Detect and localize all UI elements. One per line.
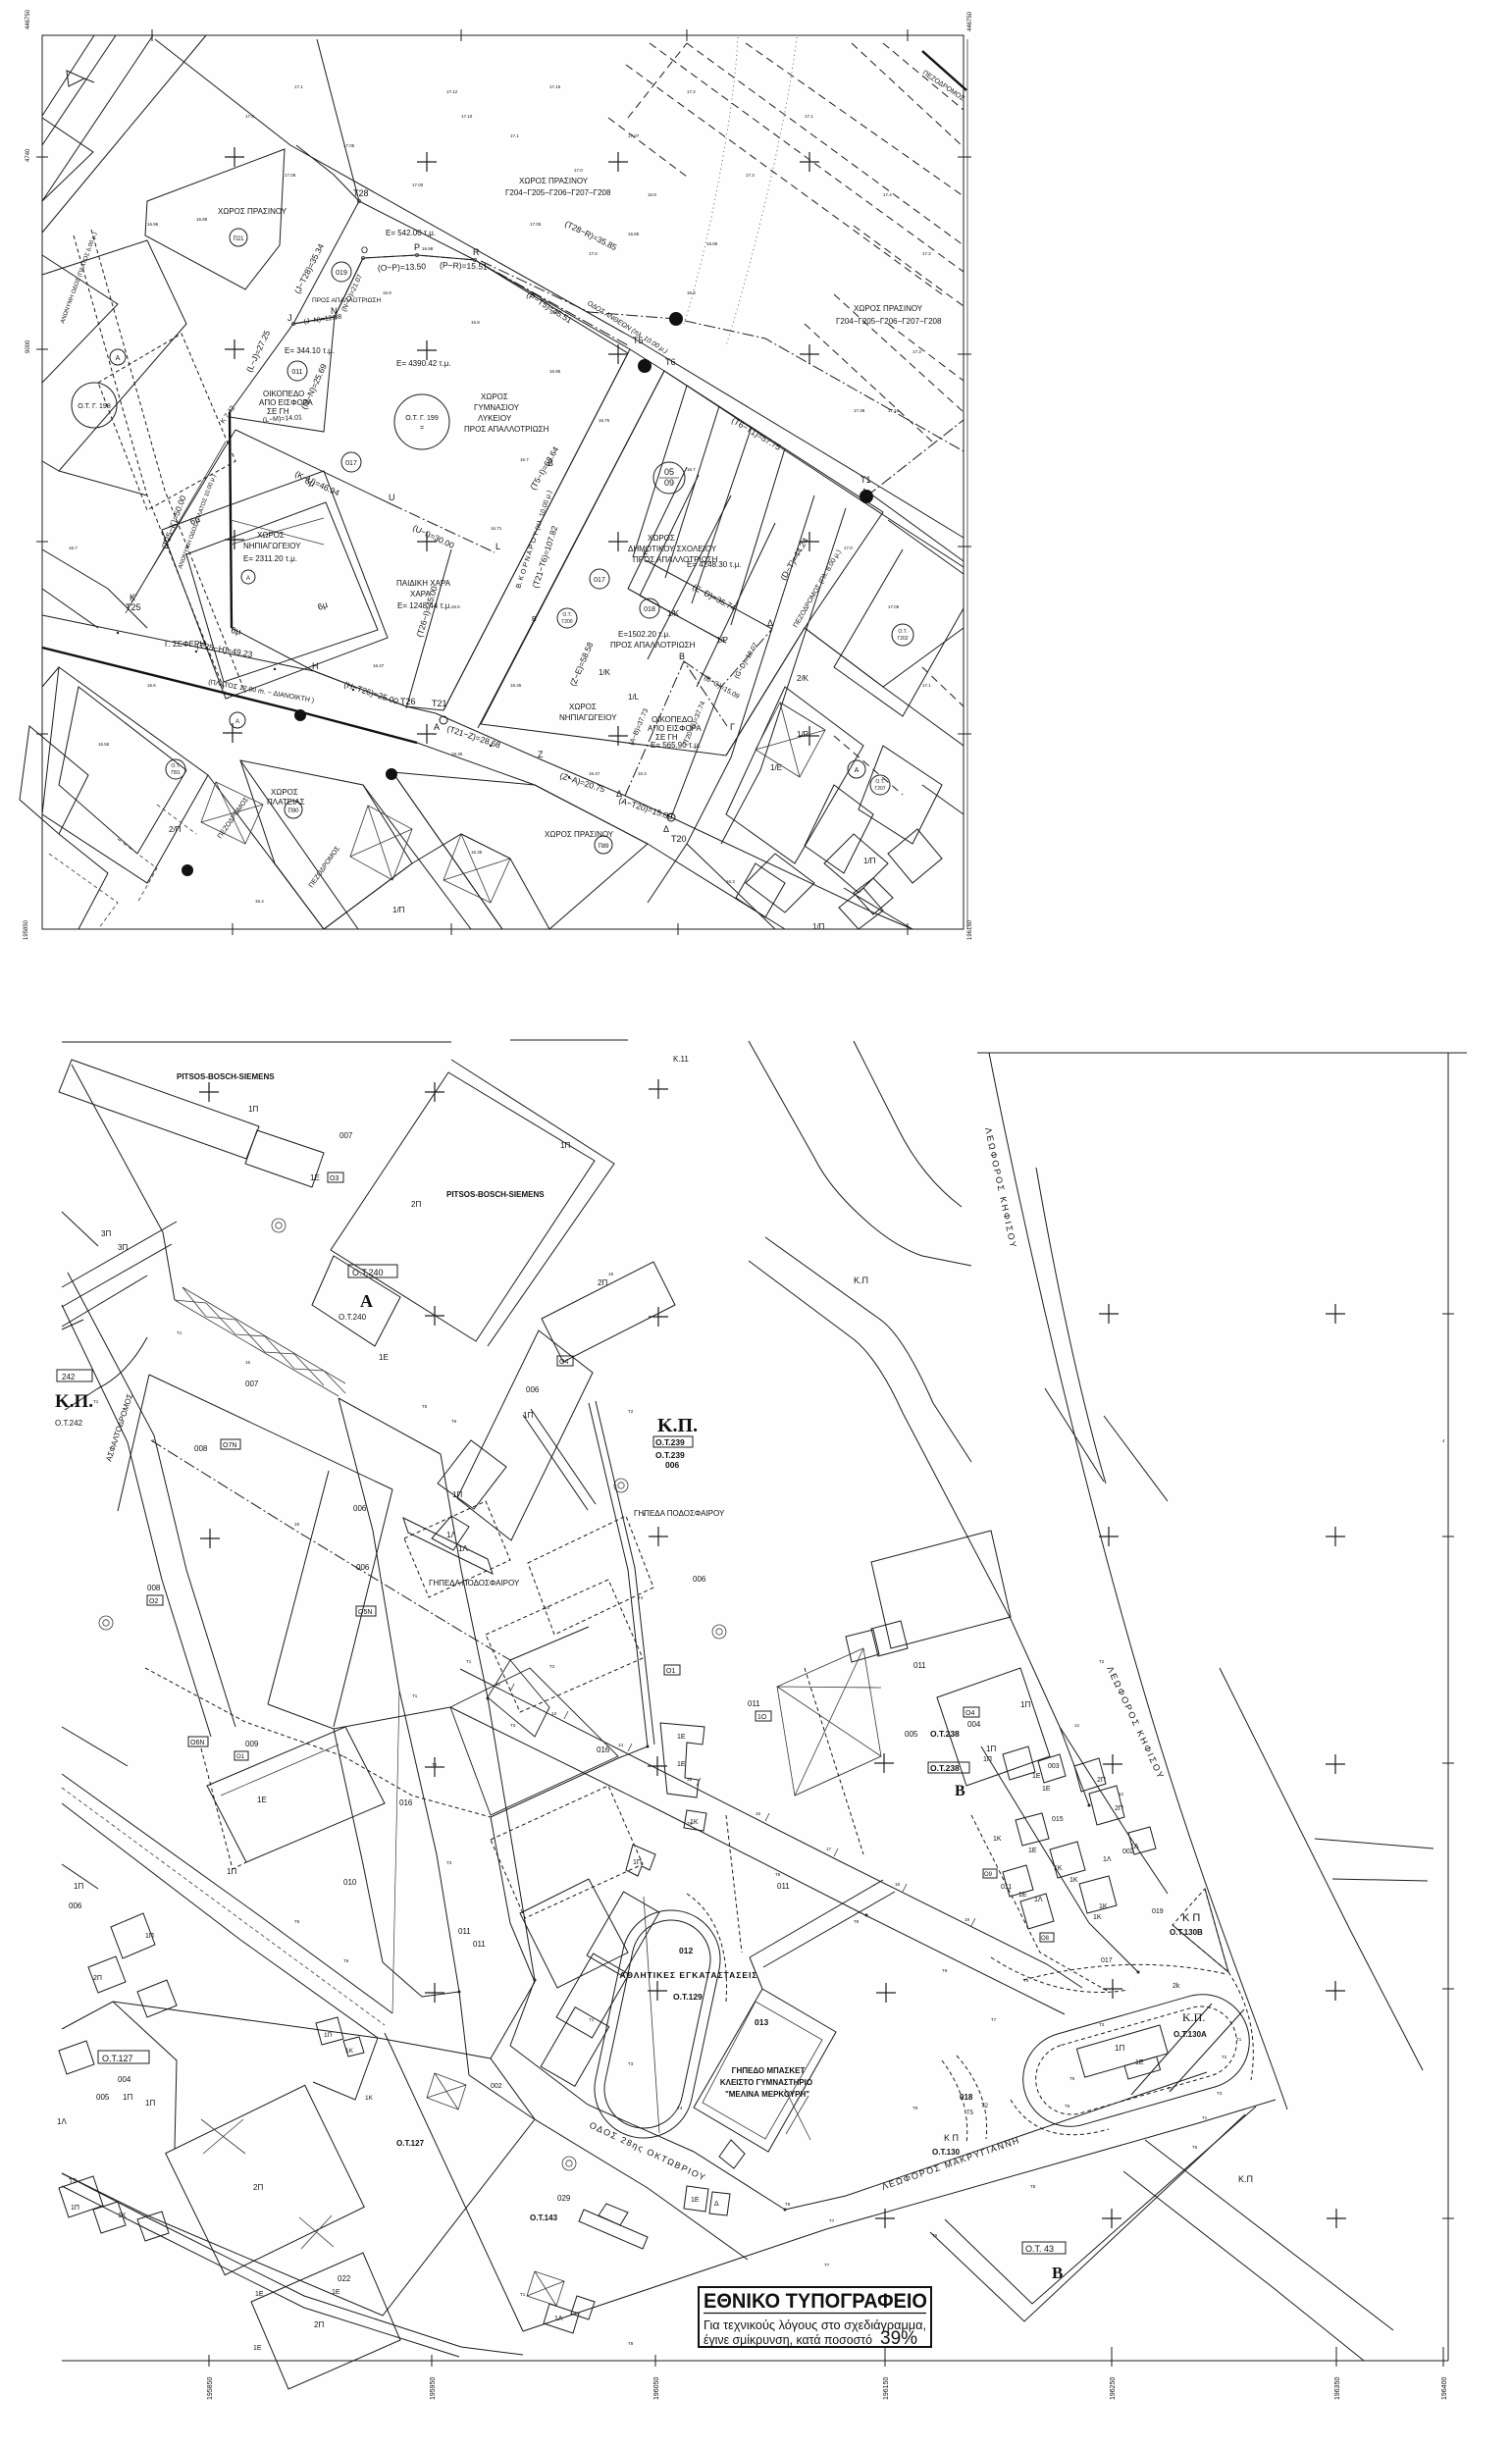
svg-text:1Π: 1Π [227, 1867, 236, 1876]
svg-text:1/Κ: 1/Κ [599, 668, 611, 677]
svg-text:Ο.Τ.238: Ο.Τ.238 [930, 1729, 960, 1739]
svg-text:ΝΗΠΙΑΓΩΓΕΙΟΥ: ΝΗΠΙΑΓΩΓΕΙΟΥ [559, 713, 617, 722]
svg-text:2Π: 2Π [1115, 1805, 1123, 1812]
svg-text:17.1: 17.1 [922, 683, 931, 688]
svg-text:17.3: 17.3 [912, 349, 921, 354]
svg-text:Τ8: Τ8 [912, 2106, 918, 2110]
svg-text:Ε= 4248.30 τ.μ.: Ε= 4248.30 τ.μ. [687, 560, 742, 569]
svg-text:ΠΑΙΔΙΚΗ ΧΑΡΑ: ΠΑΙΔΙΚΗ ΧΑΡΑ [396, 579, 451, 588]
svg-text:Ε: Ε [643, 549, 649, 559]
svg-text:018: 018 [644, 606, 655, 613]
svg-text:Τ20: Τ20 [671, 834, 687, 844]
svg-text:Ο3: Ο3 [330, 1175, 339, 1182]
svg-text:16.71: 16.71 [491, 526, 502, 531]
svg-text:Η: Η [312, 661, 319, 671]
svg-text:16.75: 16.75 [599, 418, 610, 423]
svg-text:Ο.Τ.242: Ο.Τ.242 [55, 1419, 83, 1428]
svg-text:1/Ρ: 1/Ρ [716, 636, 728, 645]
svg-text:Κ.Π.: Κ.Π. [55, 1391, 93, 1412]
svg-text:12: 12 [1119, 1792, 1124, 1797]
svg-text:12: 12 [495, 1682, 501, 1687]
svg-text:1Ο: 1Ο [757, 1714, 767, 1721]
svg-text:Β: Β [1052, 2264, 1063, 2282]
svg-text:17.2: 17.2 [687, 89, 696, 94]
svg-text:19: 19 [608, 1272, 614, 1276]
svg-text:16.7: 16.7 [687, 467, 696, 472]
svg-text:16.35: 16.35 [451, 752, 463, 756]
svg-text:1Π: 1Π [123, 2093, 132, 2102]
svg-text:ΑΘΛΗΤΙΚΕΣ ΕΓΚΑΤΑΣΤΑΣΕΙΣ: ΑΘΛΗΤΙΚΕΣ ΕΓΚΑΤΑΣΤΑΣΕΙΣ [619, 1970, 757, 1980]
svg-text:17.12: 17.12 [446, 89, 458, 94]
svg-text:Τ8: Τ8 [854, 1919, 860, 1924]
svg-text:Τ5: Τ5 [69, 2178, 77, 2185]
svg-text:ΧΩΡΟΣ: ΧΩΡΟΣ [648, 534, 675, 543]
svg-text:18: 18 [895, 1882, 901, 1887]
svg-text:ΟΙΚΟΠΕΔΟ: ΟΙΚΟΠΕΔΟ [652, 715, 693, 724]
svg-text:16.85: 16.85 [628, 232, 640, 236]
svg-text:008: 008 [147, 1584, 161, 1592]
svg-text:Ο5Ν: Ο5Ν [358, 1609, 372, 1616]
svg-text:1Ε: 1Ε [379, 1353, 389, 1362]
svg-text:R: R [473, 247, 480, 257]
svg-text:Ε= 2311.20 τ.μ.: Ε= 2311.20 τ.μ. [243, 554, 297, 563]
svg-text:16.85: 16.85 [706, 241, 718, 246]
svg-text:Τ1: Τ1 [466, 1659, 472, 1664]
svg-text:019: 019 [336, 270, 347, 277]
svg-text:16.5: 16.5 [451, 604, 460, 609]
svg-text:ΧΩΡΟΣ: ΧΩΡΟΣ [569, 703, 597, 711]
svg-text:017: 017 [345, 460, 357, 467]
svg-text:Κ.Π: Κ.Π [1238, 2174, 1253, 2184]
svg-text:Π90: Π90 [287, 808, 299, 814]
svg-text:17.0: 17.0 [844, 546, 853, 550]
svg-text:1Π: 1Π [452, 1490, 462, 1499]
svg-text:017: 017 [594, 577, 605, 584]
svg-text:16.4: 16.4 [255, 899, 264, 904]
svg-text:195950: 195950 [430, 2377, 437, 2400]
svg-text:16.55: 16.55 [98, 742, 110, 747]
svg-text:Τ1: Τ1 [520, 2292, 526, 2297]
svg-text:Τ25: Τ25 [126, 602, 141, 612]
svg-text:Τ21: Τ21 [432, 699, 447, 708]
svg-text:Ο.Τ.239: Ο.Τ.239 [655, 1437, 685, 1447]
svg-text:Τ26: Τ26 [400, 697, 416, 706]
svg-text:17.15: 17.15 [888, 408, 900, 413]
svg-text:Ο.Τ. Γ. 199: Ο.Τ. Γ. 199 [405, 415, 439, 422]
svg-text:15: 15 [245, 1360, 251, 1365]
svg-text:2Π: 2Π [93, 1975, 102, 1982]
svg-text:1Λ: 1Λ [554, 2316, 563, 2322]
svg-text:Τ4: Τ4 [638, 1595, 644, 1600]
svg-text:ΚΛΕΙΣΤΟ ΓΥΜΝΑΣΤΗΡΙΟ: ΚΛΕΙΣΤΟ ΓΥΜΝΑΣΤΗΡΙΟ [720, 2078, 812, 2087]
svg-text:2/Κ: 2/Κ [797, 674, 809, 683]
svg-text:Ο.Τ.: Ο.Τ. [875, 779, 884, 785]
svg-text:Ο.Τ.238: Ο.Τ.238 [930, 1763, 960, 1773]
svg-text:Τ2: Τ2 [1222, 2055, 1227, 2059]
svg-text:Δ: Δ [767, 618, 773, 628]
svg-text:17: 17 [826, 1847, 832, 1851]
svg-text:Τ2: Τ2 [432, 1762, 438, 1767]
svg-text:1/L: 1/L [628, 693, 640, 702]
svg-text:Ο.Τ. Γ. 198: Ο.Τ. Γ. 198 [78, 403, 111, 410]
svg-text:196350: 196350 [1334, 2377, 1341, 2400]
svg-text:17.05: 17.05 [530, 222, 542, 227]
svg-text:Κ.11: Κ.11 [673, 1055, 689, 1064]
svg-text:15: 15 [687, 1777, 693, 1782]
svg-text:Ο1: Ο1 [666, 1668, 675, 1675]
svg-text:010: 010 [343, 1878, 357, 1887]
svg-text:007: 007 [339, 1131, 353, 1140]
svg-text:6μ: 6μ [231, 625, 242, 637]
svg-text:Κ Π: Κ Π [944, 2133, 959, 2143]
svg-text:Τ5: Τ5 [422, 1404, 428, 1409]
svg-text:16.8: 16.8 [549, 310, 558, 315]
svg-text:1Π: 1Π [633, 1859, 642, 1866]
svg-text:1Κ: 1Κ [1093, 1914, 1102, 1921]
svg-text:16.9: 16.9 [648, 192, 656, 197]
svg-text:Ο.Τ.130: Ο.Τ.130 [932, 2148, 961, 2157]
svg-text:Α: Α [855, 767, 860, 774]
svg-text:1Λ: 1Λ [57, 2117, 67, 2126]
svg-text:Ο.Τ.: Ο.Τ. [171, 763, 180, 769]
svg-text:011: 011 [748, 1699, 760, 1708]
svg-text:242: 242 [62, 1373, 76, 1381]
svg-text:012: 012 [679, 1946, 693, 1955]
svg-text:1Π: 1Π [986, 1745, 996, 1753]
svg-text:16.6: 16.6 [147, 683, 156, 688]
svg-text:19: 19 [294, 1522, 300, 1527]
svg-text:015: 015 [1052, 1816, 1064, 1823]
svg-text:1Π: 1Π [523, 1411, 533, 1420]
svg-text:446750: 446750 [967, 11, 973, 31]
svg-text:Τ3: Τ3 [1217, 2091, 1223, 2096]
svg-text:ΠΡΟΣ ΑΠΑΛΛΟΤΡΙΩΣΗ: ΠΡΟΣ ΑΠΑΛΛΟΤΡΙΩΣΗ [610, 641, 696, 650]
svg-text:L: L [495, 542, 500, 551]
svg-text:1Π: 1Π [1020, 1700, 1030, 1709]
svg-text:2k: 2k [1173, 1983, 1180, 1990]
svg-text:1Π: 1Π [560, 1141, 570, 1150]
svg-text:Τ6: Τ6 [451, 1419, 457, 1424]
svg-text:1Ε: 1Ε [691, 2197, 700, 2204]
svg-text:Τ1: Τ1 [860, 475, 871, 485]
svg-text:019: 019 [1152, 1908, 1164, 1915]
svg-text:Τ5: Τ5 [1065, 2104, 1070, 2109]
svg-text:1Ε: 1Ε [677, 1761, 686, 1768]
svg-text:ΛΥΚΕΙΟΥ: ΛΥΚΕΙΟΥ [478, 414, 512, 423]
svg-text:1Ε: 1Ε [253, 2345, 262, 2352]
svg-text:Ε= 344.10 τ.μ.: Ε= 344.10 τ.μ. [285, 346, 335, 355]
svg-text:2/Π: 2/Π [169, 825, 182, 834]
svg-text:Τ2: Τ2 [1168, 2086, 1173, 2091]
svg-text:006: 006 [69, 1901, 82, 1910]
svg-text:Π89: Π89 [598, 844, 609, 850]
svg-text:16.4: 16.4 [638, 771, 647, 776]
svg-text:Ο1: Ο1 [236, 1754, 245, 1760]
svg-text:1Π: 1Π [145, 1933, 154, 1940]
svg-text:1Ε: 1Ε [332, 2289, 340, 2296]
svg-text:Ο.Τ. 43: Ο.Τ. 43 [1025, 2244, 1054, 2254]
svg-text:2Π: 2Π [314, 2320, 324, 2329]
svg-text:Τ4: Τ4 [1023, 1978, 1029, 1983]
svg-text:ΓΗΠΕΔΑ ΠΟΔΟΣΦΑΙΡΟΥ: ΓΗΠΕΔΑ ΠΟΔΟΣΦΑΙΡΟΥ [429, 1579, 520, 1588]
svg-text:Τ1: Τ1 [412, 1693, 418, 1698]
svg-text:ΧΩΡΟΣ ΠΡΑΣΙΝΟΥ: ΧΩΡΟΣ ΠΡΑΣΙΝΟΥ [854, 304, 923, 313]
svg-text:Ο.Τ.129: Ο.Τ.129 [673, 1992, 703, 2002]
svg-text:1Ε: 1Ε [255, 2291, 264, 2298]
svg-text:Ε= 542.00 τ.μ.: Ε= 542.00 τ.μ. [386, 229, 436, 237]
svg-text:Δ: Δ [663, 824, 669, 834]
svg-text:011: 011 [1001, 1884, 1012, 1891]
svg-text:Τ2: Τ2 [981, 2104, 989, 2109]
svg-text:ΧΩΡΟΣ ΠΡΑΣΙΝΟΥ: ΧΩΡΟΣ ΠΡΑΣΙΝΟΥ [218, 207, 287, 216]
svg-text:17.0: 17.0 [245, 114, 254, 119]
svg-text:004: 004 [967, 1720, 981, 1729]
svg-text:Τ8: Τ8 [785, 2202, 791, 2207]
svg-text:19: 19 [545, 1605, 550, 1610]
svg-text:05: 05 [664, 467, 674, 477]
svg-text:1Ε: 1Ε [1042, 1786, 1051, 1793]
svg-text:Τ6: Τ6 [343, 1958, 349, 1963]
svg-text:022: 022 [338, 2274, 351, 2283]
svg-text:Τ9: Τ9 [932, 2233, 938, 2238]
svg-text:Ο.Τ.239: Ο.Τ.239 [655, 1450, 685, 1460]
svg-text:16.89: 16.89 [196, 217, 208, 222]
svg-text:195850: 195850 [207, 2377, 214, 2400]
svg-text:1Κ: 1Κ [1069, 1877, 1078, 1884]
svg-text:Ο6Ν: Ο6Ν [190, 1740, 204, 1746]
svg-text:ΓΥΜΝΑΣΙΟΥ: ΓΥΜΝΑΣΙΟΥ [474, 403, 520, 412]
svg-text:Α: Α [434, 722, 440, 732]
svg-text:Κ.Π.: Κ.Π. [657, 1415, 698, 1436]
svg-text:005: 005 [96, 2093, 110, 2102]
svg-text:Τ28: Τ28 [353, 188, 369, 198]
svg-text:Κ.Π.: Κ.Π. [1182, 2010, 1205, 2024]
svg-text:1/Π: 1/Π [863, 857, 876, 865]
svg-text:Π21: Π21 [233, 236, 244, 242]
svg-text:Δ: Δ [616, 789, 622, 799]
svg-text:Ο: Ο [361, 245, 368, 255]
svg-text:Α: Α [246, 576, 250, 582]
svg-text:Β: Β [679, 651, 685, 661]
svg-text:1Κ: 1Κ [1099, 1903, 1108, 1910]
svg-text:2Π: 2Π [1097, 1777, 1106, 1784]
svg-text:Γ: Γ [730, 722, 735, 732]
svg-text:1Π: 1Π [983, 1756, 992, 1763]
svg-text:011: 011 [777, 1882, 790, 1891]
svg-text:3Π: 3Π [101, 1229, 111, 1238]
svg-text:Τ5: Τ5 [294, 1919, 300, 1924]
svg-text:17.05: 17.05 [888, 604, 900, 609]
svg-text:006: 006 [526, 1385, 540, 1394]
svg-text:Τ3: Τ3 [1099, 2022, 1105, 2027]
svg-text:196250: 196250 [1110, 2377, 1117, 2400]
svg-text:1Π: 1Π [324, 2032, 333, 2039]
svg-text:17.2: 17.2 [922, 251, 931, 256]
svg-text:1Ε: 1Ε [257, 1796, 267, 1804]
svg-text:2Π: 2Π [253, 2183, 263, 2192]
svg-text:Τ5: Τ5 [1069, 2076, 1075, 2081]
svg-text:17.4: 17.4 [883, 192, 892, 197]
svg-text:Ο4: Ο4 [965, 1710, 974, 1717]
svg-text:446750: 446750 [26, 9, 31, 29]
svg-text:196150: 196150 [967, 919, 973, 940]
svg-text:9000: 9000 [26, 339, 31, 353]
svg-text:PITSOS-BOSCH-SIEMENS: PITSOS-BOSCH-SIEMENS [446, 1190, 545, 1199]
svg-text:PITSOS-BOSCH-SIEMENS: PITSOS-BOSCH-SIEMENS [177, 1072, 275, 1081]
svg-text:004: 004 [118, 2075, 131, 2084]
svg-text:1Π: 1Π [1115, 2044, 1124, 2053]
svg-text:Τ7: Τ7 [824, 2263, 830, 2267]
svg-text:Τ3: Τ3 [510, 1723, 516, 1728]
svg-text:Γ204−Γ205−Γ206−Γ207−Γ208: Γ204−Γ205−Γ206−Γ207−Γ208 [505, 188, 611, 197]
svg-text:(Ρ−R)=15.51: (Ρ−R)=15.51 [440, 260, 488, 272]
svg-text:Ο.Τ.240: Ο.Τ.240 [352, 1268, 384, 1277]
svg-text:1Ε: 1Ε [1028, 1848, 1037, 1854]
svg-text:16.98: 16.98 [422, 246, 434, 251]
svg-text:1Κ: 1Κ [993, 1836, 1002, 1843]
svg-text:16.95: 16.95 [549, 369, 561, 374]
svg-text:Γ202: Γ202 [897, 636, 908, 642]
svg-text:017: 017 [1101, 1957, 1113, 1964]
svg-text:Ρ: Ρ [414, 242, 420, 252]
svg-text:1Κ: 1Κ [345, 2048, 354, 2055]
svg-text:ΧΩΡΟΣ: ΧΩΡΟΣ [271, 788, 298, 797]
svg-text:4740: 4740 [26, 148, 31, 162]
svg-text:Β: Β [532, 616, 537, 623]
svg-text:2Π: 2Π [411, 1200, 421, 1209]
svg-text:Κ Π: Κ Π [1182, 1912, 1200, 1924]
svg-text:009: 009 [245, 1740, 259, 1748]
svg-text:Β: Β [547, 458, 553, 468]
svg-text:Ο8: Ο8 [1041, 1936, 1050, 1942]
svg-text:2Π: 2Π [598, 1278, 607, 1287]
svg-text:Κ': Κ' [130, 593, 137, 602]
svg-text:1Π: 1Π [248, 1105, 258, 1114]
svg-text:1/Ε: 1/Ε [770, 763, 782, 772]
svg-text:011: 011 [458, 1927, 471, 1936]
svg-text:003: 003 [1048, 1763, 1060, 1770]
svg-text:1Λ: 1Λ [1034, 1897, 1043, 1903]
svg-text:17.3: 17.3 [746, 173, 755, 178]
svg-text:Τ8: Τ8 [628, 2341, 634, 2346]
svg-text:16.47: 16.47 [589, 771, 600, 776]
svg-text:Τ2: Τ2 [1099, 1659, 1105, 1664]
svg-text:ΧΩΡΟΣ: ΧΩΡΟΣ [257, 531, 285, 540]
svg-text:Τ1: Τ1 [177, 1330, 182, 1335]
svg-text:196400: 196400 [1441, 2377, 1448, 2400]
svg-text:ΠΛΑΤΕΙΑΣ: ΠΛΑΤΕΙΑΣ [267, 798, 305, 807]
svg-text:Τ2: Τ2 [628, 1409, 634, 1414]
svg-text:16.35: 16.35 [471, 850, 483, 855]
svg-text:Π91: Π91 [171, 770, 180, 776]
svg-text:Ε= 565.90 τ.μ.: Ε= 565.90 τ.μ. [651, 741, 701, 750]
svg-text:39%: 39% [880, 2328, 917, 2349]
svg-text:Τ7: Τ7 [991, 2017, 997, 2022]
svg-text:002: 002 [491, 2083, 502, 2090]
svg-text:Ο.Τ.: Ο.Τ. [562, 612, 571, 618]
svg-text:1Ε: 1Ε [677, 1734, 686, 1741]
svg-text:011: 011 [291, 369, 302, 376]
svg-text:Ο7Ν: Ο7Ν [223, 1442, 236, 1449]
svg-text:006: 006 [693, 1575, 706, 1584]
svg-text:Τ2: Τ2 [549, 1664, 555, 1669]
svg-text:195850: 195850 [24, 919, 29, 940]
svg-text:011: 011 [473, 1940, 486, 1949]
svg-text:1Λ: 1Λ [1103, 1856, 1112, 1863]
svg-text:Ο.Τ.: Ο.Τ. [898, 629, 907, 635]
svg-text:1Ε: 1Ε [1135, 2059, 1144, 2066]
svg-text:ΠΡΟΣ ΑΠΑΛΛΟΤΡΙΩΣΗ: ΠΡΟΣ ΑΠΑΛΛΟΤΡΙΩΣΗ [464, 425, 549, 434]
svg-text:(Ο−Ρ)=13.50: (Ο−Ρ)=13.50 [378, 261, 427, 273]
svg-text:16.96: 16.96 [147, 222, 159, 227]
svg-text:17.05: 17.05 [343, 143, 355, 148]
svg-text:"ΜΕΛΙΝΑ ΜΕΡΚΟΥΡΗ": "ΜΕΛΙΝΑ ΜΕΡΚΟΥΡΗ" [725, 2090, 809, 2099]
svg-text:16.7: 16.7 [520, 457, 529, 462]
svg-text:006: 006 [665, 1460, 679, 1470]
svg-text:13: 13 [551, 1711, 557, 1716]
svg-text:1Π: 1Π [145, 2099, 155, 2108]
svg-text:Α: Α [235, 719, 239, 725]
svg-text:1Ε: 1Ε [310, 1173, 320, 1182]
svg-text:196050: 196050 [653, 2377, 660, 2400]
svg-text:Τ9: Τ9 [942, 1968, 948, 1973]
svg-text:Ν: Ν [331, 306, 338, 316]
svg-text:1Π: 1Π [74, 1882, 83, 1891]
svg-text:Τ4: Τ4 [687, 1821, 693, 1826]
svg-text:1/Κ: 1/Κ [667, 609, 680, 618]
svg-text:ΓΗΠΕΔΟ ΜΠΑΣΚΕΤ: ΓΗΠΕΔΟ ΜΠΑΣΚΕΤ [732, 2066, 806, 2075]
svg-text:U: U [389, 493, 395, 502]
svg-text:Κ.Π: Κ.Π [854, 1276, 868, 1285]
svg-text:Ο4: Ο4 [559, 1359, 568, 1366]
svg-text:006: 006 [353, 1504, 367, 1513]
svg-text:Β: Β [955, 1783, 965, 1799]
svg-text:16.8: 16.8 [687, 290, 696, 295]
svg-text:ΧΩΡΟΣ ΠΡΑΣΙΝΟΥ: ΧΩΡΟΣ ΠΡΑΣΙΝΟΥ [545, 830, 614, 839]
svg-text:ΧΩΡΟΣ: ΧΩΡΟΣ [481, 392, 508, 401]
svg-text:1/Π: 1/Π [812, 922, 825, 931]
svg-text:Τ1: Τ1 [1202, 2115, 1208, 2120]
svg-text:007: 007 [245, 1380, 259, 1388]
svg-text:Τ8: Τ8 [1030, 2184, 1036, 2189]
svg-text:14: 14 [618, 1743, 624, 1747]
svg-text:016: 016 [399, 1798, 413, 1807]
svg-text:013: 013 [755, 2017, 768, 2027]
svg-text:16.3: 16.3 [726, 879, 735, 884]
svg-text:1Λ: 1Λ [1130, 1844, 1139, 1850]
svg-text:Ο.Τ.127: Ο.Τ.127 [102, 2054, 133, 2063]
svg-text:029: 029 [557, 2194, 571, 2203]
svg-text:Α: Α [360, 1291, 373, 1311]
svg-text:1Ε: 1Ε [1018, 1892, 1027, 1899]
svg-text:Τ5: Τ5 [966, 2110, 974, 2116]
svg-text:005: 005 [905, 1730, 918, 1739]
svg-text:17.1: 17.1 [294, 84, 303, 89]
svg-text:17.0: 17.0 [589, 251, 598, 256]
svg-text:Ο.Τ.240: Ο.Τ.240 [339, 1313, 367, 1322]
svg-text:16: 16 [756, 1811, 761, 1816]
svg-text:Τ3: Τ3 [446, 1860, 452, 1865]
svg-text:ΓΗΠΕΔΑ ΠΟΔΟΣΦΑΙΡΟΥ: ΓΗΠΕΔΑ ΠΟΔΟΣΦΑΙΡΟΥ [634, 1509, 725, 1518]
svg-text:Α: Α [116, 355, 121, 362]
svg-text:1Κ: 1Κ [365, 2095, 374, 2102]
svg-text:ΝΗΠΙΑΓΩΓΕΙΟΥ: ΝΗΠΙΑΓΩΓΕΙΟΥ [243, 542, 301, 550]
svg-text:17.10: 17.10 [461, 114, 473, 119]
svg-text:17.1: 17.1 [805, 114, 813, 119]
svg-text:16.45: 16.45 [510, 683, 522, 688]
svg-text:Γ200: Γ200 [561, 619, 572, 625]
svg-text:Τ6: Τ6 [775, 1872, 781, 1877]
